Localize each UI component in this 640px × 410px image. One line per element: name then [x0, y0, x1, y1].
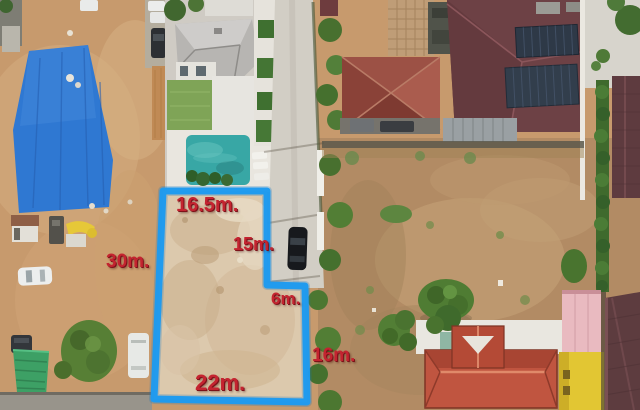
measurement-label-notch-edge: 6m.: [271, 290, 300, 307]
terracotta-roof-house: [340, 57, 440, 134]
measurement-label-left-edge: 30m.: [106, 252, 149, 271]
black-car: [287, 227, 307, 271]
motorbikes: [49, 216, 64, 244]
storage-shed: [11, 215, 39, 242]
yellow-building: [559, 352, 604, 410]
measurement-label-right-lower-edge: 16m.: [312, 346, 355, 365]
green-net-structure: [13, 350, 49, 396]
sun-loungers: [252, 151, 269, 180]
paver-driveway: [388, 0, 454, 56]
aerial-photo: 16.5m. 15m. 6m. 30m. 16m. 22m.: [0, 0, 640, 410]
white-van: [128, 333, 149, 378]
measurement-label-right-upper-edge: 15m.: [233, 235, 274, 253]
maroon-roof-house: [443, 0, 580, 142]
measurement-label-bottom-edge: 22m.: [195, 372, 245, 394]
dark-maroon-roof-house: [601, 292, 640, 410]
measurement-label-top-edge: 16.5m.: [176, 195, 238, 215]
white-car: [18, 266, 53, 286]
hedge-strip: [594, 80, 610, 292]
pink-building: [562, 290, 601, 353]
